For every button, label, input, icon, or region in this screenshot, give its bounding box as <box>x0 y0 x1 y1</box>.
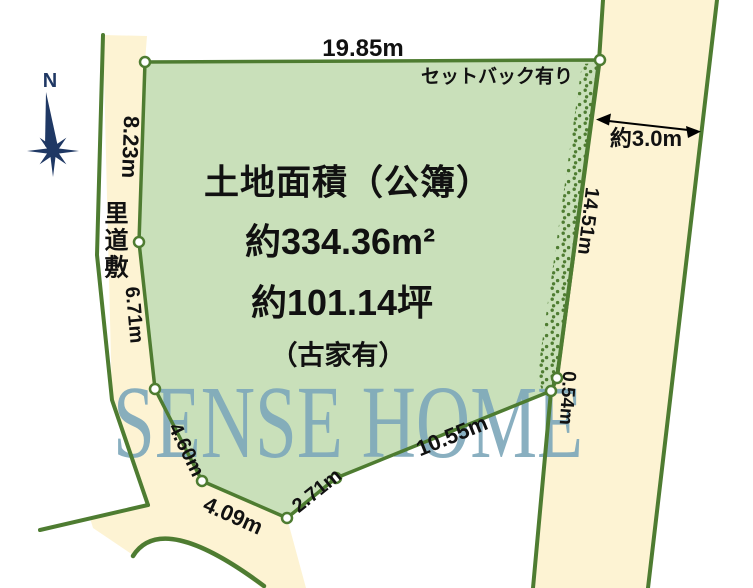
old-house-note: （古家有） <box>271 343 406 370</box>
setback-note-label: セットバック有り <box>421 68 573 87</box>
compass-rose-icon <box>27 92 79 177</box>
land-area-tsubo-value: 約101.14坪 <box>251 285 433 321</box>
measurement-top-edge: 19.85m <box>322 37 403 61</box>
left-road-name-label: 里道敷 <box>101 201 125 282</box>
measurement-left-upper-edge: 8.23m <box>118 115 142 178</box>
land-plot-diagram: SENSE HOME <box>0 0 753 588</box>
land-area-sqm-value: 約334.36m² <box>245 224 435 260</box>
measurement-right-lower-edge: 0.54m <box>556 370 579 425</box>
compass-north-label: N <box>43 71 57 91</box>
land-area-title: 土地面積（公簿） <box>204 166 492 201</box>
measurement-left-middle-edge: 6.71m <box>122 286 147 344</box>
right-road-width-label: 約3.0m <box>610 128 682 150</box>
